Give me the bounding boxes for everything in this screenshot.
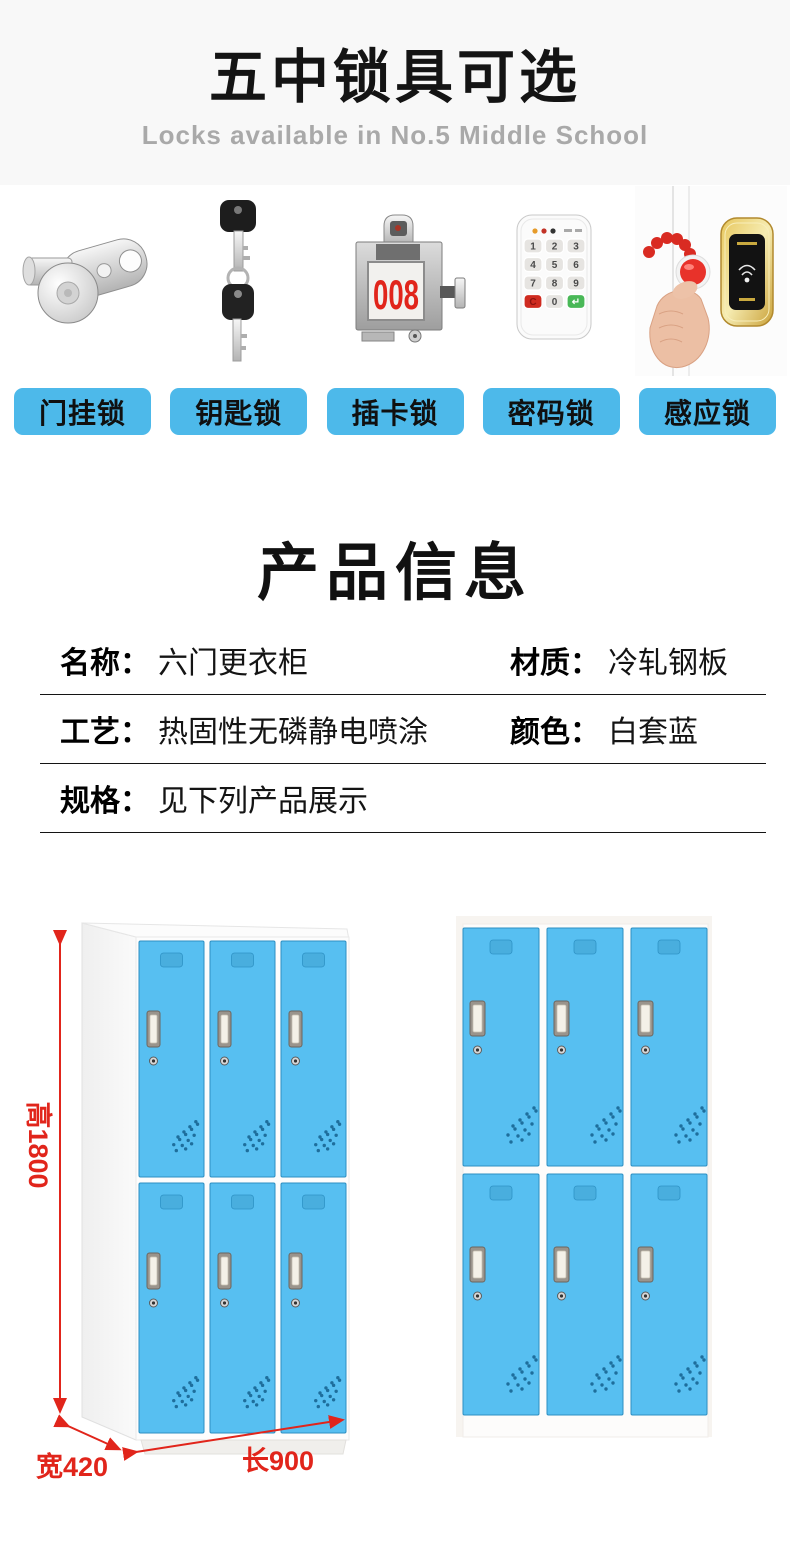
product-info-title: 产品信息 bbox=[0, 522, 790, 612]
svg-text:5: 5 bbox=[552, 260, 558, 271]
svg-text:0: 0 bbox=[552, 297, 558, 308]
locks-gallery: 008 123456789C0↵ bbox=[0, 185, 790, 377]
svg-text:3: 3 bbox=[573, 242, 579, 253]
width-dimension-label: 宽420 bbox=[36, 1451, 108, 1482]
info-value-color: 白套蓝 bbox=[608, 707, 698, 751]
svg-text:4: 4 bbox=[530, 260, 536, 271]
lock-image-cell bbox=[632, 185, 790, 377]
lock-image-cell bbox=[0, 185, 158, 377]
lock-image-cell: 008 bbox=[316, 185, 474, 377]
lock-image-cell bbox=[158, 185, 316, 377]
svg-text:↵: ↵ bbox=[572, 297, 580, 308]
info-label-color: 颜色： bbox=[510, 707, 600, 751]
product-info-table: 名称： 六门更衣柜 材质： 冷轧钢板 工艺： 热固性无磷静电喷涂 颜色： 白套蓝… bbox=[40, 626, 766, 833]
info-value-material: 冷轧钢板 bbox=[608, 638, 728, 682]
key-lock-icon bbox=[162, 186, 312, 376]
length-dimension-label: 长900 bbox=[242, 1446, 314, 1476]
lock-label-card-lock: 插卡锁 bbox=[327, 388, 464, 435]
svg-text:1: 1 bbox=[530, 242, 536, 253]
lock-label-key-lock: 钥匙锁 bbox=[170, 388, 307, 435]
card-lock-icon: 008 bbox=[320, 186, 470, 376]
lock-image-cell: 123456789C0↵ bbox=[474, 185, 632, 377]
cam-lock-icon bbox=[4, 186, 154, 376]
svg-text:8: 8 bbox=[552, 279, 558, 290]
info-row-spec: 规格： 见下列产品展示 bbox=[40, 764, 766, 833]
locker-front-image bbox=[450, 910, 720, 1445]
lock-label-induction-lock: 感应锁 bbox=[639, 388, 776, 435]
info-label-craft: 工艺： bbox=[60, 707, 150, 751]
hero-section: 五中锁具可选 Locks available in No.5 Middle Sc… bbox=[0, 0, 790, 186]
locker-perspective-image: 高1800 宽420 长900 bbox=[15, 895, 385, 1495]
lock-labels-row: 门挂锁 钥匙锁 插卡锁 密码锁 感应锁 bbox=[0, 388, 790, 435]
svg-text:9: 9 bbox=[573, 279, 579, 290]
info-row-name-material: 名称： 六门更衣柜 材质： 冷轧钢板 bbox=[40, 626, 766, 695]
rfid-lock-icon bbox=[635, 186, 787, 376]
svg-text:C: C bbox=[529, 297, 536, 308]
lock-label-password-lock: 密码锁 bbox=[483, 388, 620, 435]
svg-text:6: 6 bbox=[573, 260, 579, 271]
lock-label-cam-lock: 门挂锁 bbox=[14, 388, 151, 435]
product-detail-page: 五中锁具可选 Locks available in No.5 Middle Sc… bbox=[0, 0, 790, 1567]
page-title: 五中锁具可选 bbox=[0, 0, 790, 110]
svg-text:7: 7 bbox=[530, 279, 536, 290]
info-value-name: 六门更衣柜 bbox=[158, 638, 308, 682]
height-dimension-label: 高1800 bbox=[23, 1101, 54, 1188]
info-row-craft-color: 工艺： 热固性无磷静电喷涂 颜色： 白套蓝 bbox=[40, 695, 766, 764]
card-lock-number: 008 bbox=[373, 271, 419, 318]
locker-doors bbox=[139, 941, 346, 1433]
info-value-craft: 热固性无磷静电喷涂 bbox=[158, 707, 428, 751]
info-label-spec: 规格： bbox=[60, 776, 150, 820]
svg-text:2: 2 bbox=[552, 242, 558, 253]
info-label-material: 材质： bbox=[510, 638, 600, 682]
page-subtitle: Locks available in No.5 Middle School bbox=[0, 120, 790, 151]
info-label-name: 名称： bbox=[60, 638, 150, 682]
info-value-spec: 见下列产品展示 bbox=[158, 776, 368, 820]
keypad-lock-icon: 123456789C0↵ bbox=[478, 186, 628, 376]
